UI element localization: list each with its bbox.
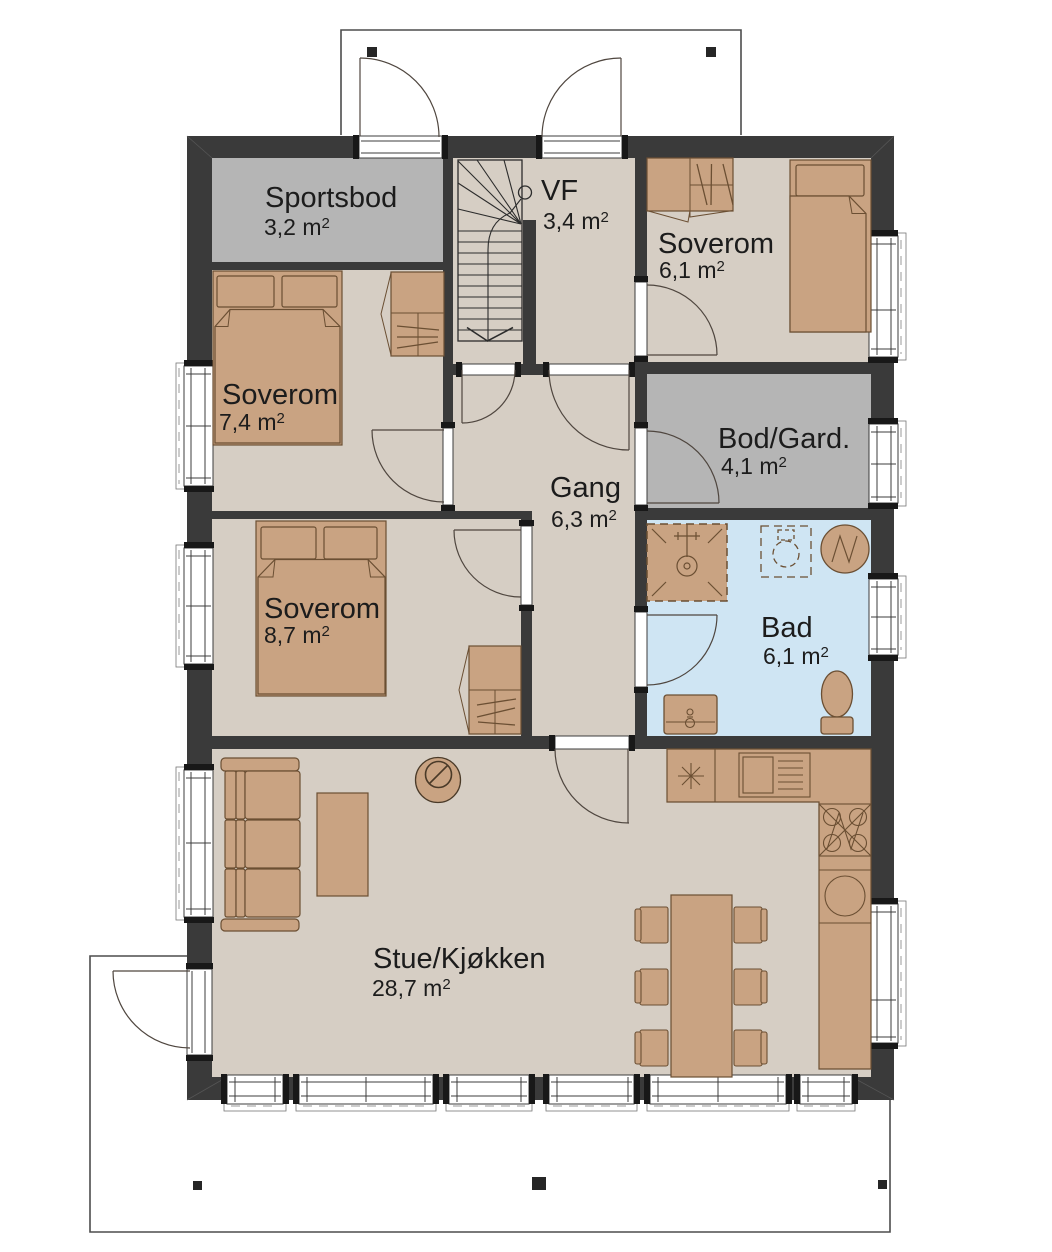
svg-text:Soverom: Soverom	[658, 228, 774, 260]
svg-text:3,4 m2: 3,4 m2	[543, 208, 609, 234]
svg-text:VF: VF	[541, 175, 578, 207]
svg-text:Bad: Bad	[761, 612, 813, 644]
svg-text:7,4 m2: 7,4 m2	[219, 409, 285, 435]
svg-text:28,7 m2: 28,7 m2	[372, 975, 451, 1001]
svg-text:Gang: Gang	[550, 472, 621, 504]
svg-text:Bod/Gard.: Bod/Gard.	[718, 423, 850, 455]
svg-text:Soverom: Soverom	[222, 379, 338, 411]
svg-text:6,3 m2: 6,3 m2	[551, 506, 617, 532]
svg-text:6,1 m2: 6,1 m2	[659, 257, 725, 283]
svg-text:8,7 m2: 8,7 m2	[264, 622, 330, 648]
svg-text:4,1 m2: 4,1 m2	[721, 453, 787, 479]
svg-text:Sportsbod: Sportsbod	[265, 182, 397, 214]
svg-text:Soverom: Soverom	[264, 593, 380, 625]
svg-text:6,1 m2: 6,1 m2	[763, 643, 829, 669]
svg-text:3,2 m2: 3,2 m2	[264, 214, 330, 240]
svg-text:Stue/Kjøkken: Stue/Kjøkken	[373, 943, 545, 975]
